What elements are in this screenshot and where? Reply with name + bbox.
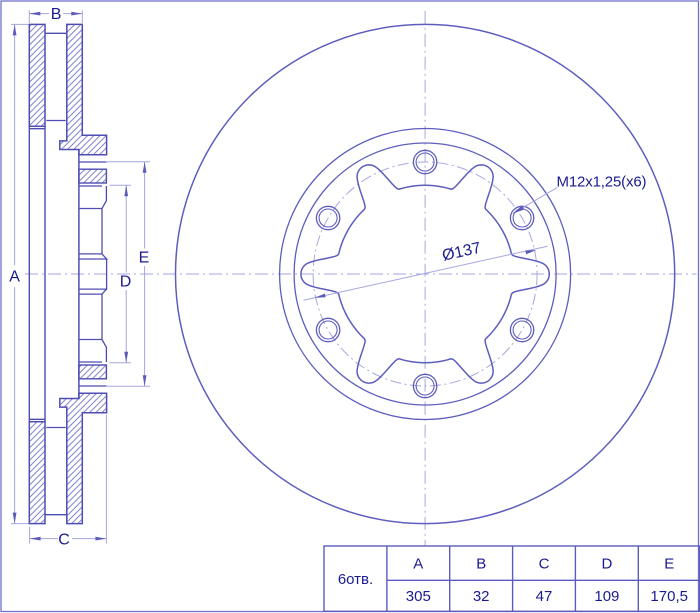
svg-text:D: D: [120, 274, 132, 291]
svg-text:B: B: [51, 6, 62, 23]
svg-text:47: 47: [536, 588, 553, 605]
svg-text:6отв.: 6отв.: [338, 571, 373, 588]
svg-text:C: C: [58, 531, 70, 548]
svg-text:A: A: [413, 556, 423, 573]
svg-text:32: 32: [473, 588, 490, 605]
svg-text:109: 109: [594, 588, 619, 605]
svg-text:B: B: [476, 556, 486, 573]
svg-text:C: C: [539, 556, 550, 573]
svg-text:A: A: [9, 269, 20, 286]
svg-text:305: 305: [406, 588, 431, 605]
svg-text:D: D: [601, 556, 612, 573]
svg-text:M12x1,25(x6): M12x1,25(x6): [557, 173, 647, 190]
svg-text:E: E: [139, 249, 150, 266]
svg-text:170,5: 170,5: [650, 588, 688, 605]
svg-text:E: E: [664, 556, 674, 573]
